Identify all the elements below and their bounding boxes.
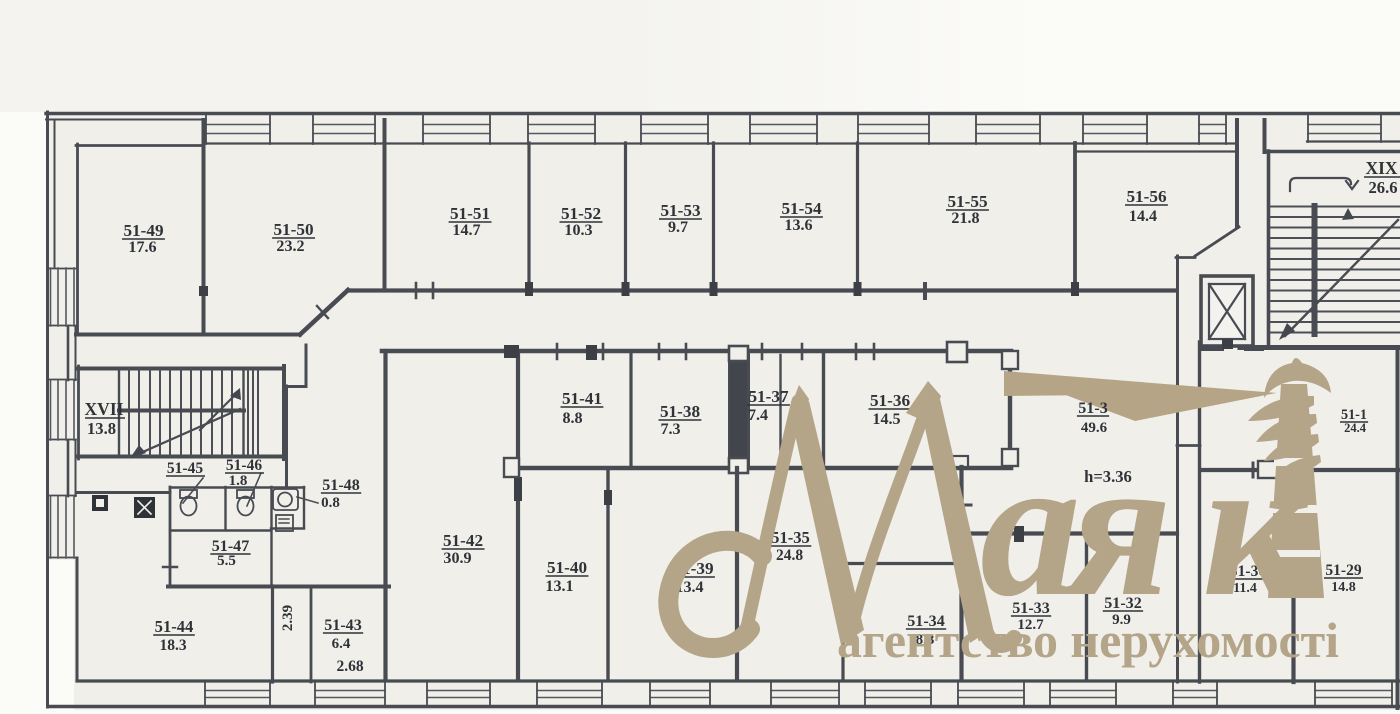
svg-text:13.6: 13.6 xyxy=(784,217,812,234)
svg-text:1.8: 1.8 xyxy=(229,473,248,489)
svg-text:51-51: 51-51 xyxy=(450,204,490,223)
svg-text:30.9: 30.9 xyxy=(443,550,471,567)
svg-text:14.8: 14.8 xyxy=(1331,580,1356,595)
svg-text:0.8: 0.8 xyxy=(321,495,340,511)
svg-text:17.6: 17.6 xyxy=(128,239,156,256)
svg-text:51-53: 51-53 xyxy=(660,201,700,220)
svg-text:14.5: 14.5 xyxy=(872,411,900,428)
svg-text:51-43: 51-43 xyxy=(324,617,362,634)
svg-text:51-45: 51-45 xyxy=(167,460,203,477)
svg-text:23.2: 23.2 xyxy=(276,238,304,255)
svg-text:6.4: 6.4 xyxy=(332,636,351,652)
svg-text:ая: ая xyxy=(980,414,1172,638)
svg-text:14.4: 14.4 xyxy=(1129,208,1157,225)
svg-text:51-46: 51-46 xyxy=(226,457,262,474)
svg-text:21.8: 21.8 xyxy=(951,210,979,227)
svg-text:51-37: 51-37 xyxy=(748,387,789,406)
svg-text:к: к xyxy=(1202,414,1309,638)
svg-text:24.4: 24.4 xyxy=(1344,421,1367,435)
svg-text:10.3: 10.3 xyxy=(564,222,592,239)
svg-text:8.8: 8.8 xyxy=(562,410,582,427)
svg-text:51-40: 51-40 xyxy=(547,558,587,577)
svg-text:51-48: 51-48 xyxy=(322,477,360,494)
svg-text:XIX: XIX xyxy=(1365,158,1397,178)
svg-text:13.8: 13.8 xyxy=(87,419,116,438)
svg-text:агентство нерухомості: агентство нерухомості xyxy=(837,612,1339,668)
svg-text:51-56: 51-56 xyxy=(1126,187,1167,206)
svg-text:5.5: 5.5 xyxy=(217,553,236,569)
svg-text:26.6: 26.6 xyxy=(1368,178,1397,197)
svg-text:2.68: 2.68 xyxy=(336,658,363,675)
svg-text:51-52: 51-52 xyxy=(561,204,601,223)
svg-text:51-54: 51-54 xyxy=(781,199,822,218)
svg-text:2.39: 2.39 xyxy=(280,605,296,631)
svg-text:51-38: 51-38 xyxy=(660,402,701,421)
svg-text:14.7: 14.7 xyxy=(452,222,480,239)
svg-text:51-29: 51-29 xyxy=(1325,562,1361,579)
svg-text:51-41: 51-41 xyxy=(562,389,602,408)
svg-text:51-55: 51-55 xyxy=(947,192,987,211)
svg-text:51-49: 51-49 xyxy=(123,221,163,240)
svg-text:7.4: 7.4 xyxy=(748,407,768,424)
svg-text:51-35: 51-35 xyxy=(771,528,810,547)
svg-text:51-50: 51-50 xyxy=(273,220,313,239)
svg-text:XVII: XVII xyxy=(85,399,124,419)
svg-text:9.7: 9.7 xyxy=(668,219,688,236)
svg-text:51-42: 51-42 xyxy=(443,531,483,550)
svg-text:51-36: 51-36 xyxy=(870,391,911,410)
svg-text:51-44: 51-44 xyxy=(155,617,194,636)
svg-text:18.3: 18.3 xyxy=(159,637,186,654)
svg-text:13.1: 13.1 xyxy=(545,578,573,595)
svg-text:24.8: 24.8 xyxy=(776,547,803,564)
svg-text:7.3: 7.3 xyxy=(660,421,680,438)
